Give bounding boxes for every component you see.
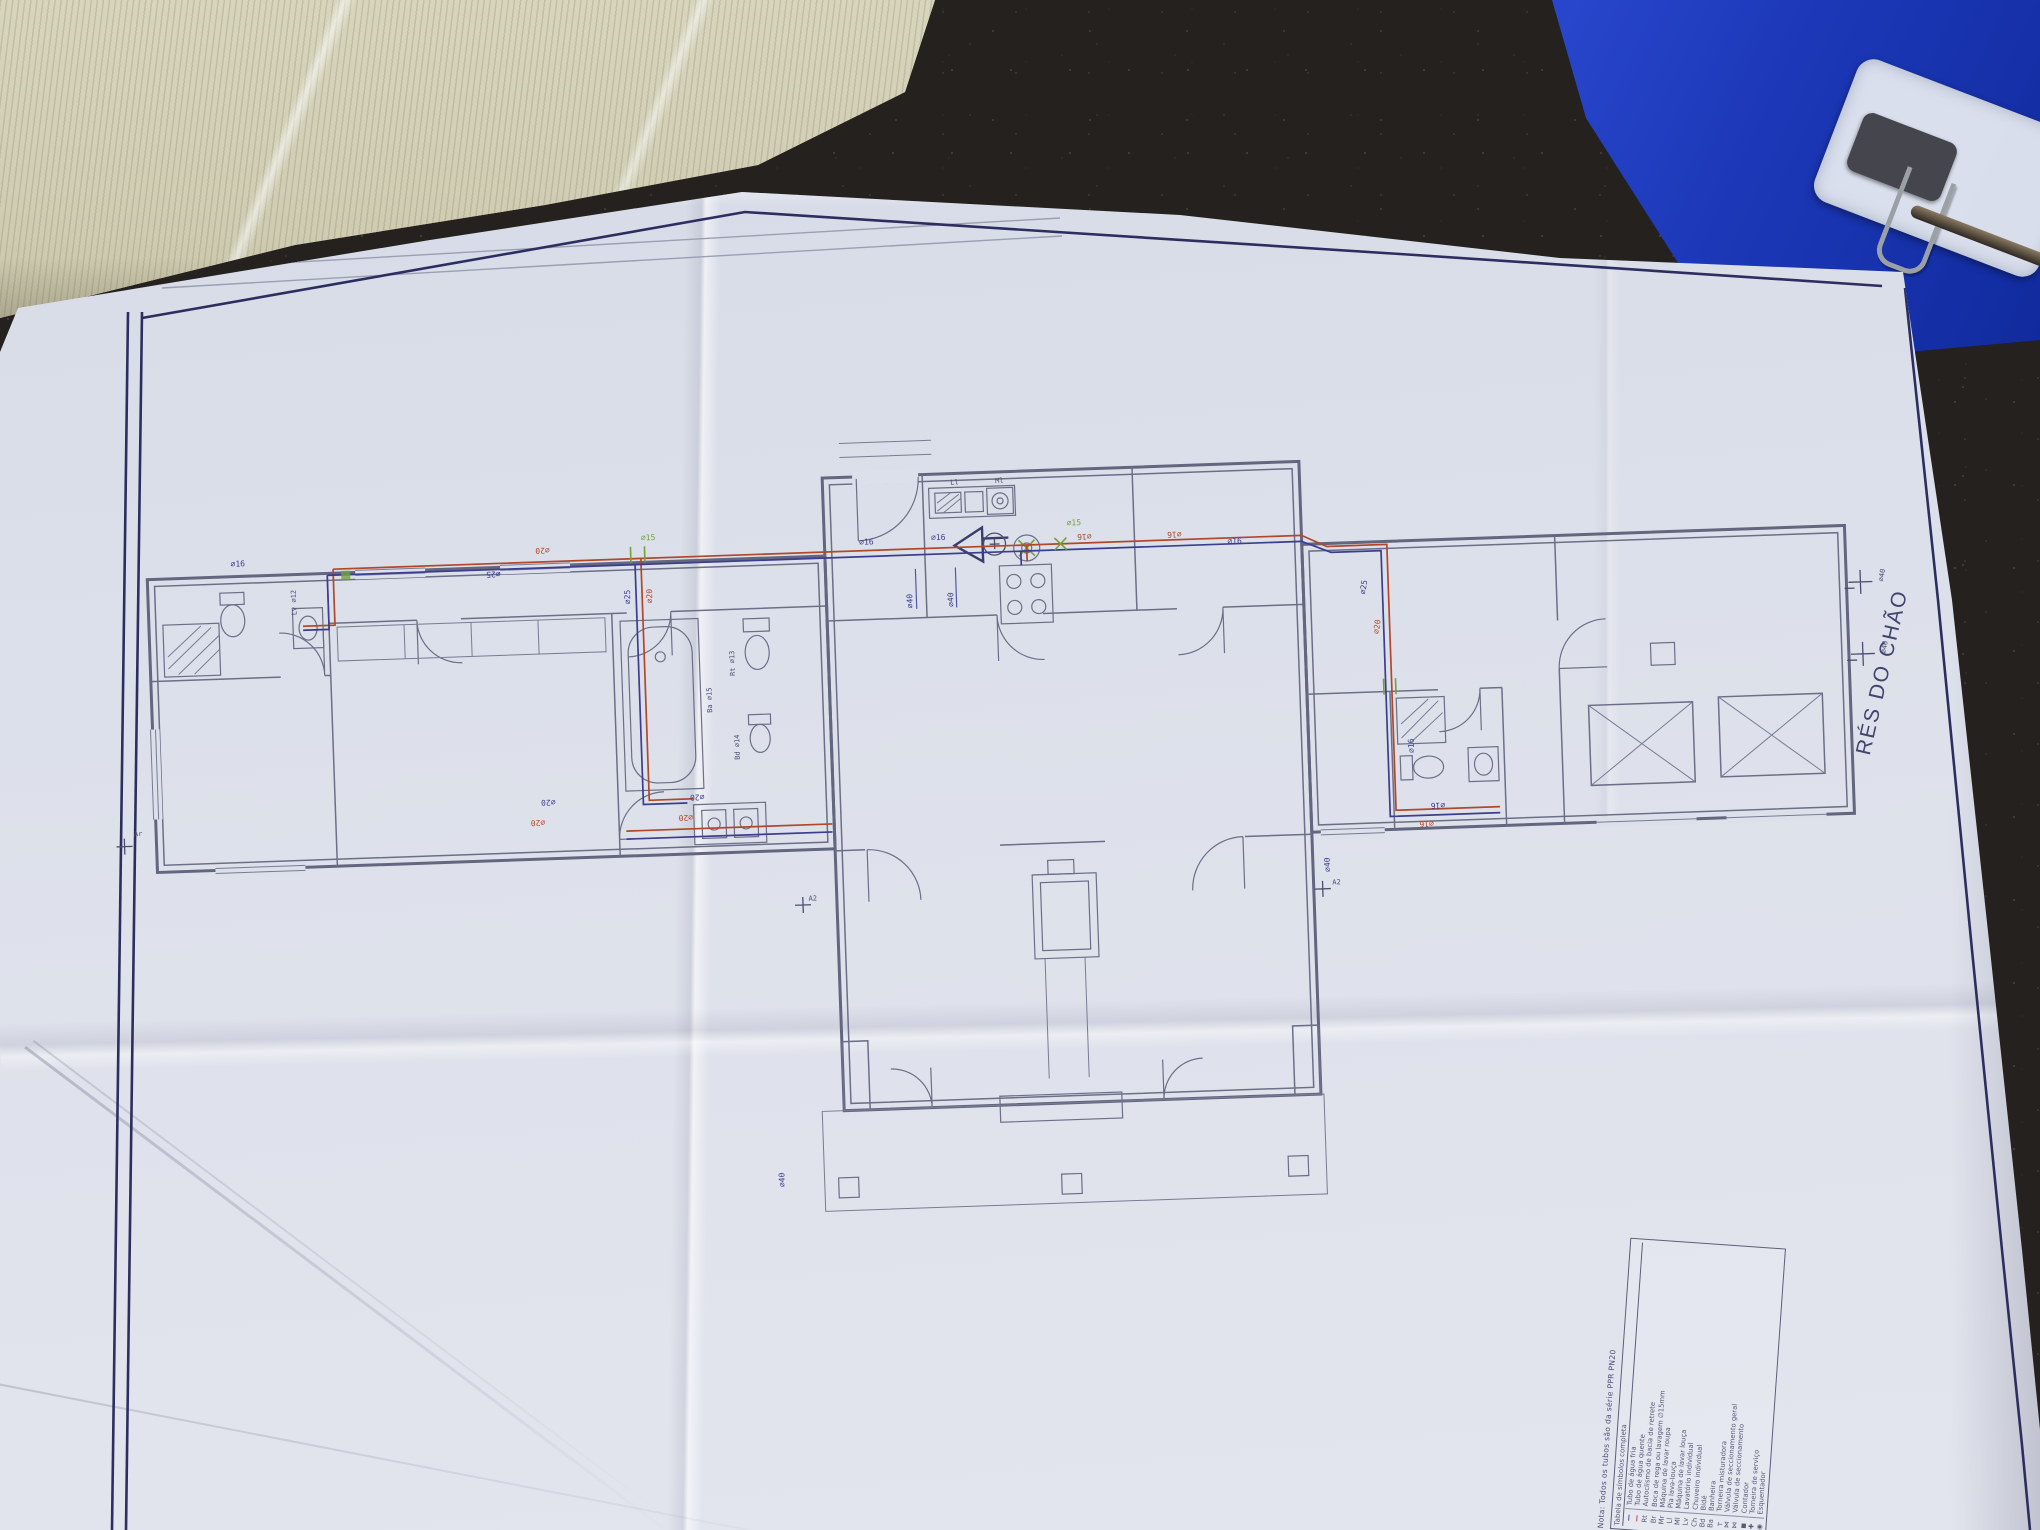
door-arc [997,613,1045,661]
window-symbol [1321,825,1385,839]
center-block [799,427,1327,1211]
pipe-diameter-label: ∅40 [905,594,915,609]
pipe-diameter-label: ∅16 [931,533,946,543]
washbasin-cabinet-symbol [693,802,766,844]
wall-stub [842,1041,870,1111]
bathtub-symbol [620,618,704,791]
door-arc [1191,837,1245,891]
shower-symbol [163,623,221,677]
living-room [835,834,1321,1127]
wardrobe-symbol [337,618,606,661]
pipe-diameter-label: ∅16 [1407,738,1417,753]
door-arc [627,611,673,657]
vent-label: A2 [1332,878,1341,886]
pipe-diameter-label: ∅16 [1430,801,1445,811]
fixture-label: Lv ∅12 [290,590,299,616]
door-arc [891,1068,932,1109]
left-wing [142,551,835,880]
cooktop-symbol [999,564,1053,624]
dishwasher-symbol [987,487,1014,514]
entry-steps [839,440,931,457]
bathroom-left [147,573,337,872]
pipe-diameter-label: ∅15 [1066,518,1081,528]
pipe-diameter-label: ∅20 [690,792,705,802]
pipe-diameter-label: ∅16 [859,537,874,547]
pipe-diameter-label: ∅25 [623,589,633,604]
pipe-diameter-label: ∅16 [1227,536,1242,546]
door-arc [1177,607,1225,655]
porch-terrace [822,1094,1327,1211]
pipe-diameter-label: ∅25 [486,569,501,579]
pipe-diameter-label: ∅16 [230,559,245,569]
pipe-diameter-labels: ∅20 ∅25 ∅16 ∅15 ∅25 ∅20 ∅20 ∅20 ∅20 ∅20 … [123,446,1908,1209]
fixture-label: Ll [950,478,959,486]
garage [1555,526,1827,828]
door-arc [856,477,920,541]
shower-symbol [1396,696,1446,744]
pipe-diameter-label: ∅40 [1323,857,1333,872]
toilet-symbol [743,618,771,670]
pipe-diameter-label: ∅20 [1372,619,1383,635]
porch-pillar [839,1177,860,1198]
toilet-symbol [220,592,246,637]
legend-box: Tabela de símbolos completa —Tubo de águ… [1610,1238,1786,1530]
vent-label: Ar [134,830,143,838]
legend-row-label: Esquentador [1756,1471,1767,1519]
window-symbol [142,560,580,880]
pipe-diameter-label: ∅15 [641,533,656,543]
supply-arrow [954,527,1009,563]
vent-label: A2 [808,895,817,903]
toilet-symbol [1400,755,1444,780]
legend-block: Nota: Todos os tubos são da série PPR PN… [1596,1237,1786,1530]
pipe-diameter-label: ∅16 [1419,819,1434,829]
bidet-symbol [748,714,771,753]
door-arc [279,632,325,678]
hot-water-pipes [301,529,1500,848]
door-arc [1163,1058,1204,1099]
wall-stub [1293,1025,1321,1095]
door-arc [1558,619,1608,669]
fireplace-symbol [1032,859,1104,1079]
door-arc [618,792,666,840]
pipe-diameter-label: ∅20 [645,589,655,604]
parking-space-symbol [1718,693,1825,777]
valve-symbols [341,520,1396,731]
pipe-diameter-label: ∅20 [678,813,693,823]
bathroom-main [612,616,777,847]
porch-pillar [1288,1156,1309,1177]
pipe-diameter-label: ∅20 [535,546,550,556]
pipe-diameter-label: ∅20 [530,818,545,828]
drain-label: ∅40 [1877,568,1887,582]
door-arc [867,848,921,902]
porch-pillar [1062,1173,1083,1194]
fixture-label: Ba ∅15 [705,687,714,713]
fixture-label: Bd ∅14 [733,734,742,760]
fixture-label: Rt ∅13 [728,651,737,677]
pipe-diameter-label: ∅40 [777,1172,787,1187]
photo-scene: ∅20 ∅25 ∅16 ∅15 ∅25 ∅20 ∅20 ∅20 ∅20 ∅20 … [0,0,2040,1530]
washbasin-symbol [1468,747,1499,782]
pipe-diameter-label: ∅20 [541,798,556,808]
pipe-diameter-label: ∅40 [946,592,956,607]
garage-window [1650,642,1675,665]
fixture-label: Ml [995,477,1004,485]
parking-space-symbol [1589,702,1696,786]
pipe-diameter-label: ∅16 [1077,532,1092,542]
pipe-diameter-label: ∅25 [1358,579,1369,595]
legend-symbol: ◉ [1755,1518,1764,1530]
pipe-diameter-label: ∅16 [1167,530,1182,540]
